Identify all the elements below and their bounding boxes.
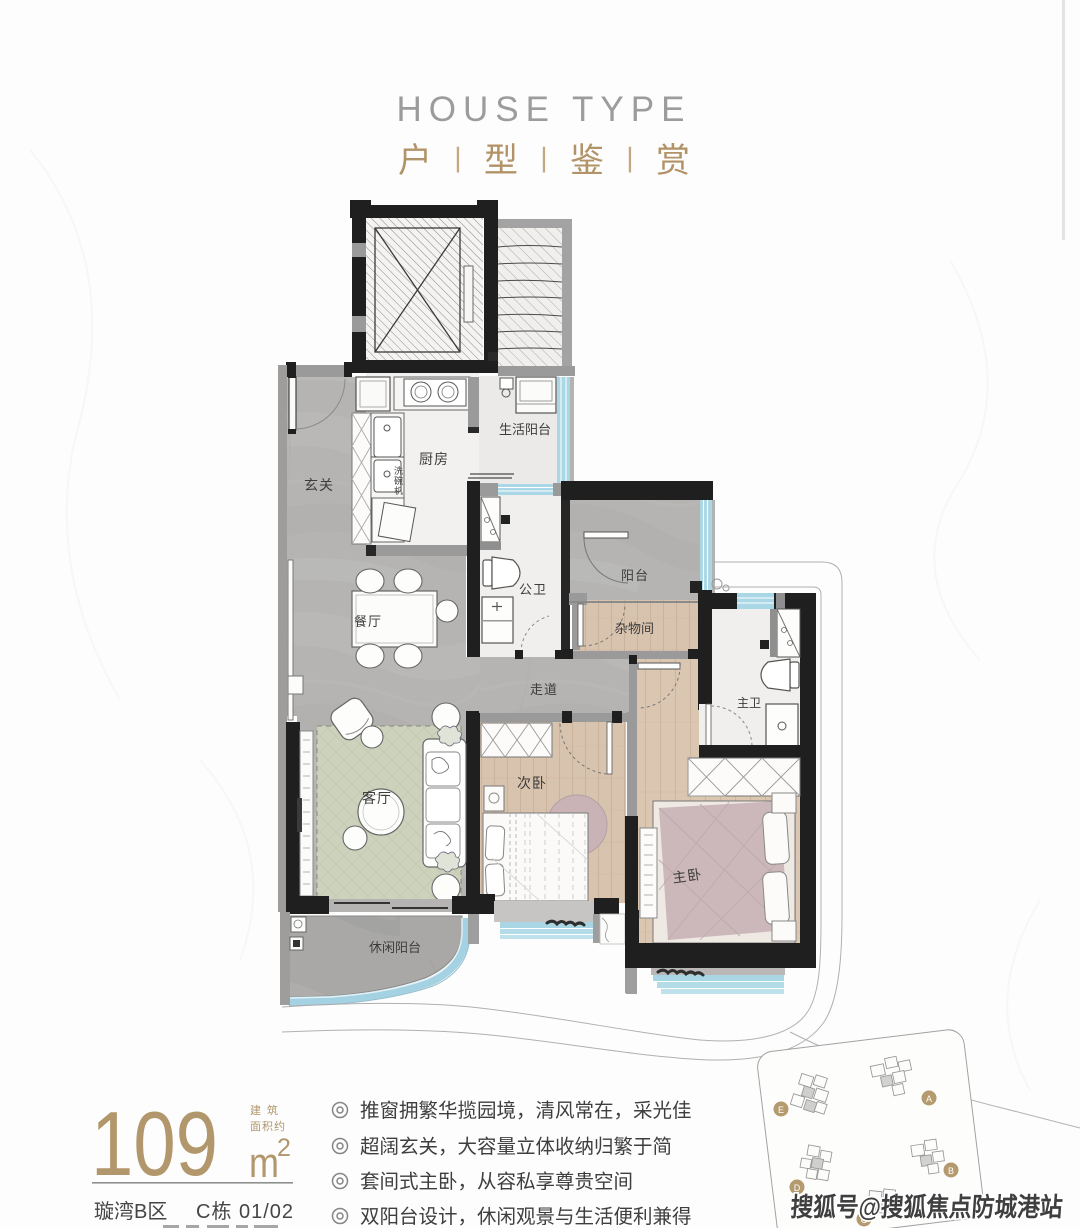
svg-text:HOUSE TYPE: HOUSE TYPE [397,90,692,129]
svg-text:厨房: 厨房 [419,451,449,467]
svg-text:109: 109 [91,1094,218,1195]
svg-text:B: B [948,1166,954,1176]
svg-text:E: E [778,1105,784,1115]
svg-text:搜狐号@搜狐焦点防城港站: 搜狐号@搜狐焦点防城港站 [790,1192,1064,1222]
svg-text:套间式主卧，从容私享尊贵空间: 套间式主卧，从容私享尊贵空间 [360,1171,633,1193]
svg-text:碗: 碗 [394,475,403,486]
svg-text:璇湾B区: 璇湾B区 [94,1200,167,1223]
svg-text:主卫: 主卫 [737,696,761,710]
svg-text:走道: 走道 [530,682,558,697]
svg-text:双阳台设计，休闲观景与生活便利兼得: 双阳台设计，休闲观景与生活便利兼得 [360,1206,692,1228]
svg-text:建筑: 建筑 [250,1103,284,1117]
svg-text:m: m [249,1139,279,1186]
svg-text:餐厅: 餐厅 [354,614,382,629]
svg-text:阳台: 阳台 [621,568,649,583]
svg-text:客厅: 客厅 [362,790,392,806]
svg-text:C栋 01/02: C栋 01/02 [196,1200,294,1223]
svg-text:推窗拥繁华揽园境，清风常在，采光佳: 推窗拥繁华揽园境，清风常在，采光佳 [360,1100,692,1122]
svg-text:公卫: 公卫 [519,582,547,597]
svg-text:面积约: 面积约 [250,1120,286,1133]
svg-text:玄关: 玄关 [304,477,334,493]
svg-text:杂物间: 杂物间 [615,621,654,636]
svg-text:洗: 洗 [394,465,403,476]
svg-text:2: 2 [277,1134,291,1162]
svg-text:超阔玄关，大容量立体收纳归繁于简: 超阔玄关，大容量立体收纳归繁于简 [360,1136,672,1158]
svg-text:机: 机 [394,485,403,496]
svg-text:生活阳台: 生活阳台 [499,422,551,437]
svg-text:次卧: 次卧 [517,775,547,791]
svg-text:A: A [926,1094,932,1104]
svg-text:休闲阳台: 休闲阳台 [369,940,421,955]
